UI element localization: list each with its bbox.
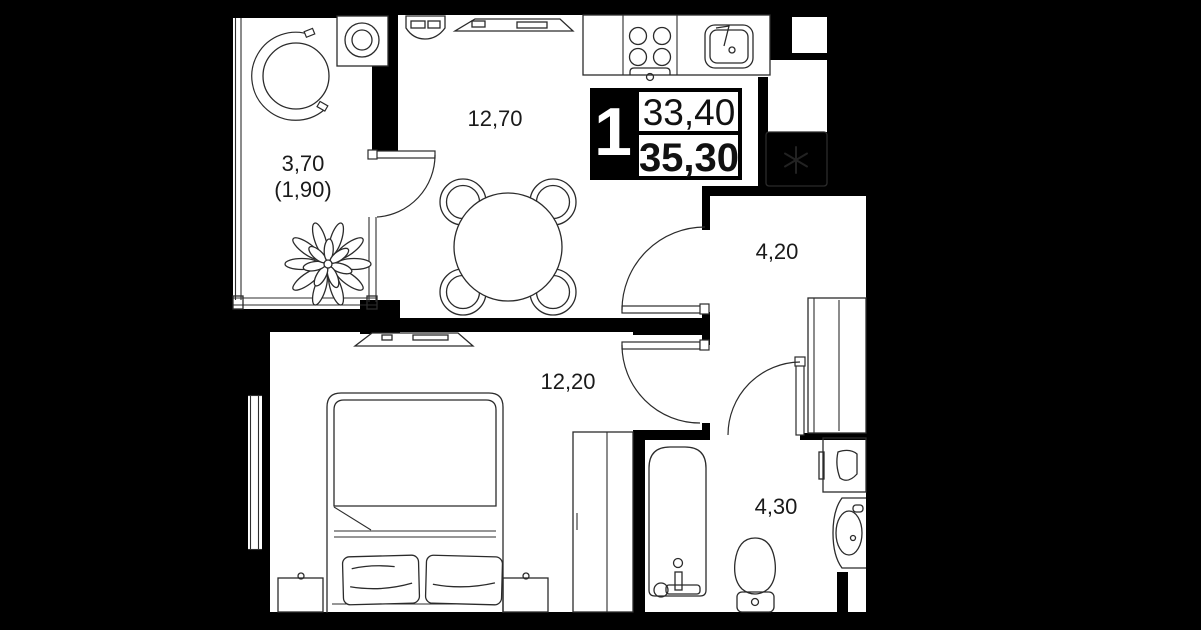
- total-area-value: 35,30: [639, 136, 739, 180]
- dining-set-icon: [440, 179, 576, 315]
- kitchen-area-label: 12,70: [467, 106, 522, 131]
- ventilation-box: [766, 132, 827, 186]
- bedroom-area-label: 12,20: [540, 369, 595, 394]
- shaft-niche: [792, 17, 827, 53]
- floor-plan: 1 33,40 35,30 3,70 (1,90) 12,70 4,20 12,…: [0, 0, 1201, 630]
- kitchen-floor-strip: [768, 60, 827, 132]
- living-area-value: 33,40: [643, 92, 736, 133]
- rooms-count-value: 1: [594, 94, 632, 170]
- balcony-area-label: 3,70: [282, 151, 325, 176]
- bathroom-shaft-wall: [837, 572, 848, 613]
- asterisk-icon: [785, 147, 807, 173]
- bathroom-door-gap: [710, 430, 800, 443]
- tv-living-icon: [455, 19, 573, 31]
- floor-plan-drawing: 1 33,40 35,30 3,70 (1,90) 12,70 4,20 12,…: [0, 0, 1201, 630]
- pillow-icon: [425, 555, 502, 605]
- hallway-floor: [710, 196, 866, 433]
- tv-bedroom-icon: [355, 333, 473, 346]
- hallway-area-label: 4,20: [756, 239, 799, 264]
- bathroom-area-label: 4,30: [755, 494, 798, 519]
- balcony-reduced-area-label: (1,90): [274, 177, 331, 202]
- bedroom-door-gap: [700, 345, 712, 423]
- pillow-icon: [342, 555, 419, 605]
- dining-table-icon: [454, 193, 562, 301]
- unit-info-box: 1 33,40 35,30: [590, 88, 742, 180]
